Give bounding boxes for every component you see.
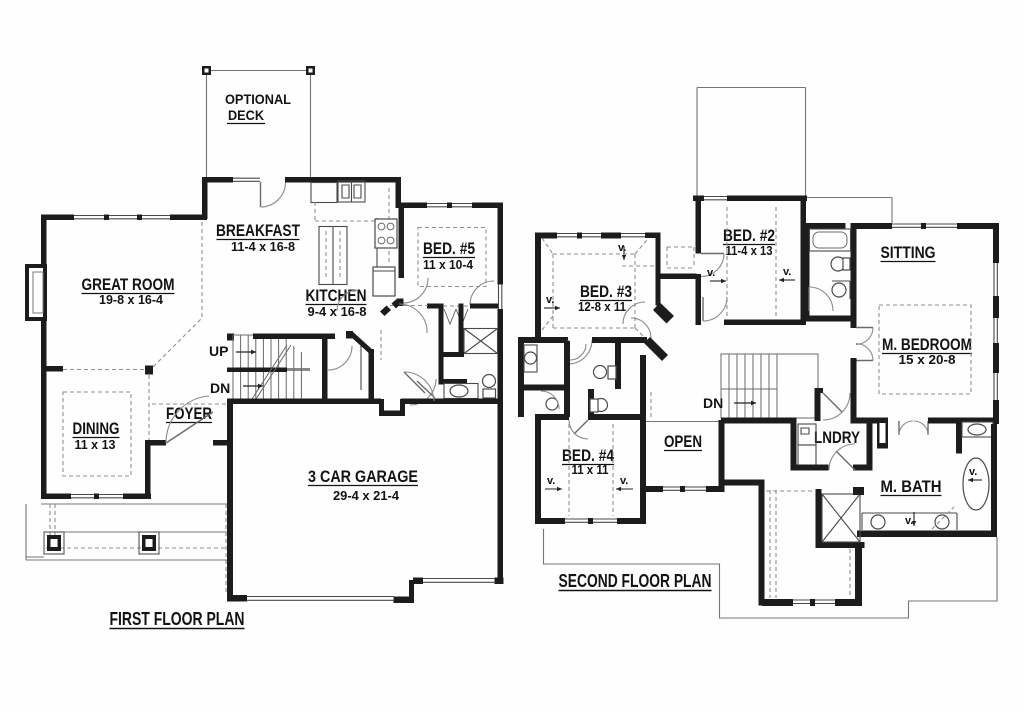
svg-text:12-8 x 11: 12-8 x 11 [578,299,626,314]
svg-text:DN: DN [210,380,230,396]
svg-text:OPEN: OPEN [664,433,702,451]
svg-text:v.: v. [618,242,626,254]
svg-text:UP: UP [209,343,228,359]
svg-text:11 x 11: 11 x 11 [572,462,609,477]
svg-text:BED. #5: BED. #5 [423,240,475,258]
svg-text:11 x 13: 11 x 13 [75,437,116,452]
svg-text:M. BATH: M. BATH [881,478,942,496]
svg-text:v.: v. [783,266,791,278]
svg-text:29-4 x 21-4: 29-4 x 21-4 [333,488,400,503]
svg-text:DN: DN [703,395,723,411]
svg-text:11-4 x 13: 11-4 x 13 [726,243,773,258]
svg-text:v.: v. [707,267,715,279]
svg-text:DECK: DECK [228,107,264,123]
svg-text:FOYER: FOYER [166,405,212,423]
svg-text:15 x 20-8: 15 x 20-8 [899,352,956,367]
svg-text:SITTING: SITTING [881,244,936,262]
svg-text:11-4 x 16-8: 11-4 x 16-8 [231,239,295,254]
svg-text:v.: v. [547,475,555,487]
svg-text:BREAKFAST: BREAKFAST [216,222,300,240]
svg-text:v.: v. [620,475,628,487]
svg-text:OPTIONAL: OPTIONAL [225,91,291,107]
svg-text:v.: v. [969,466,977,478]
svg-text:3 CAR GARAGE: 3 CAR GARAGE [308,468,418,486]
svg-text:FIRST FLOOR PLAN: FIRST FLOOR PLAN [110,609,245,629]
svg-text:DINING: DINING [73,420,120,438]
svg-text:11 x 10-4: 11 x 10-4 [423,257,474,272]
svg-text:SECOND FLOOR PLAN: SECOND FLOOR PLAN [559,571,712,591]
svg-text:19-8 x 16-4: 19-8 x 16-4 [99,292,164,307]
